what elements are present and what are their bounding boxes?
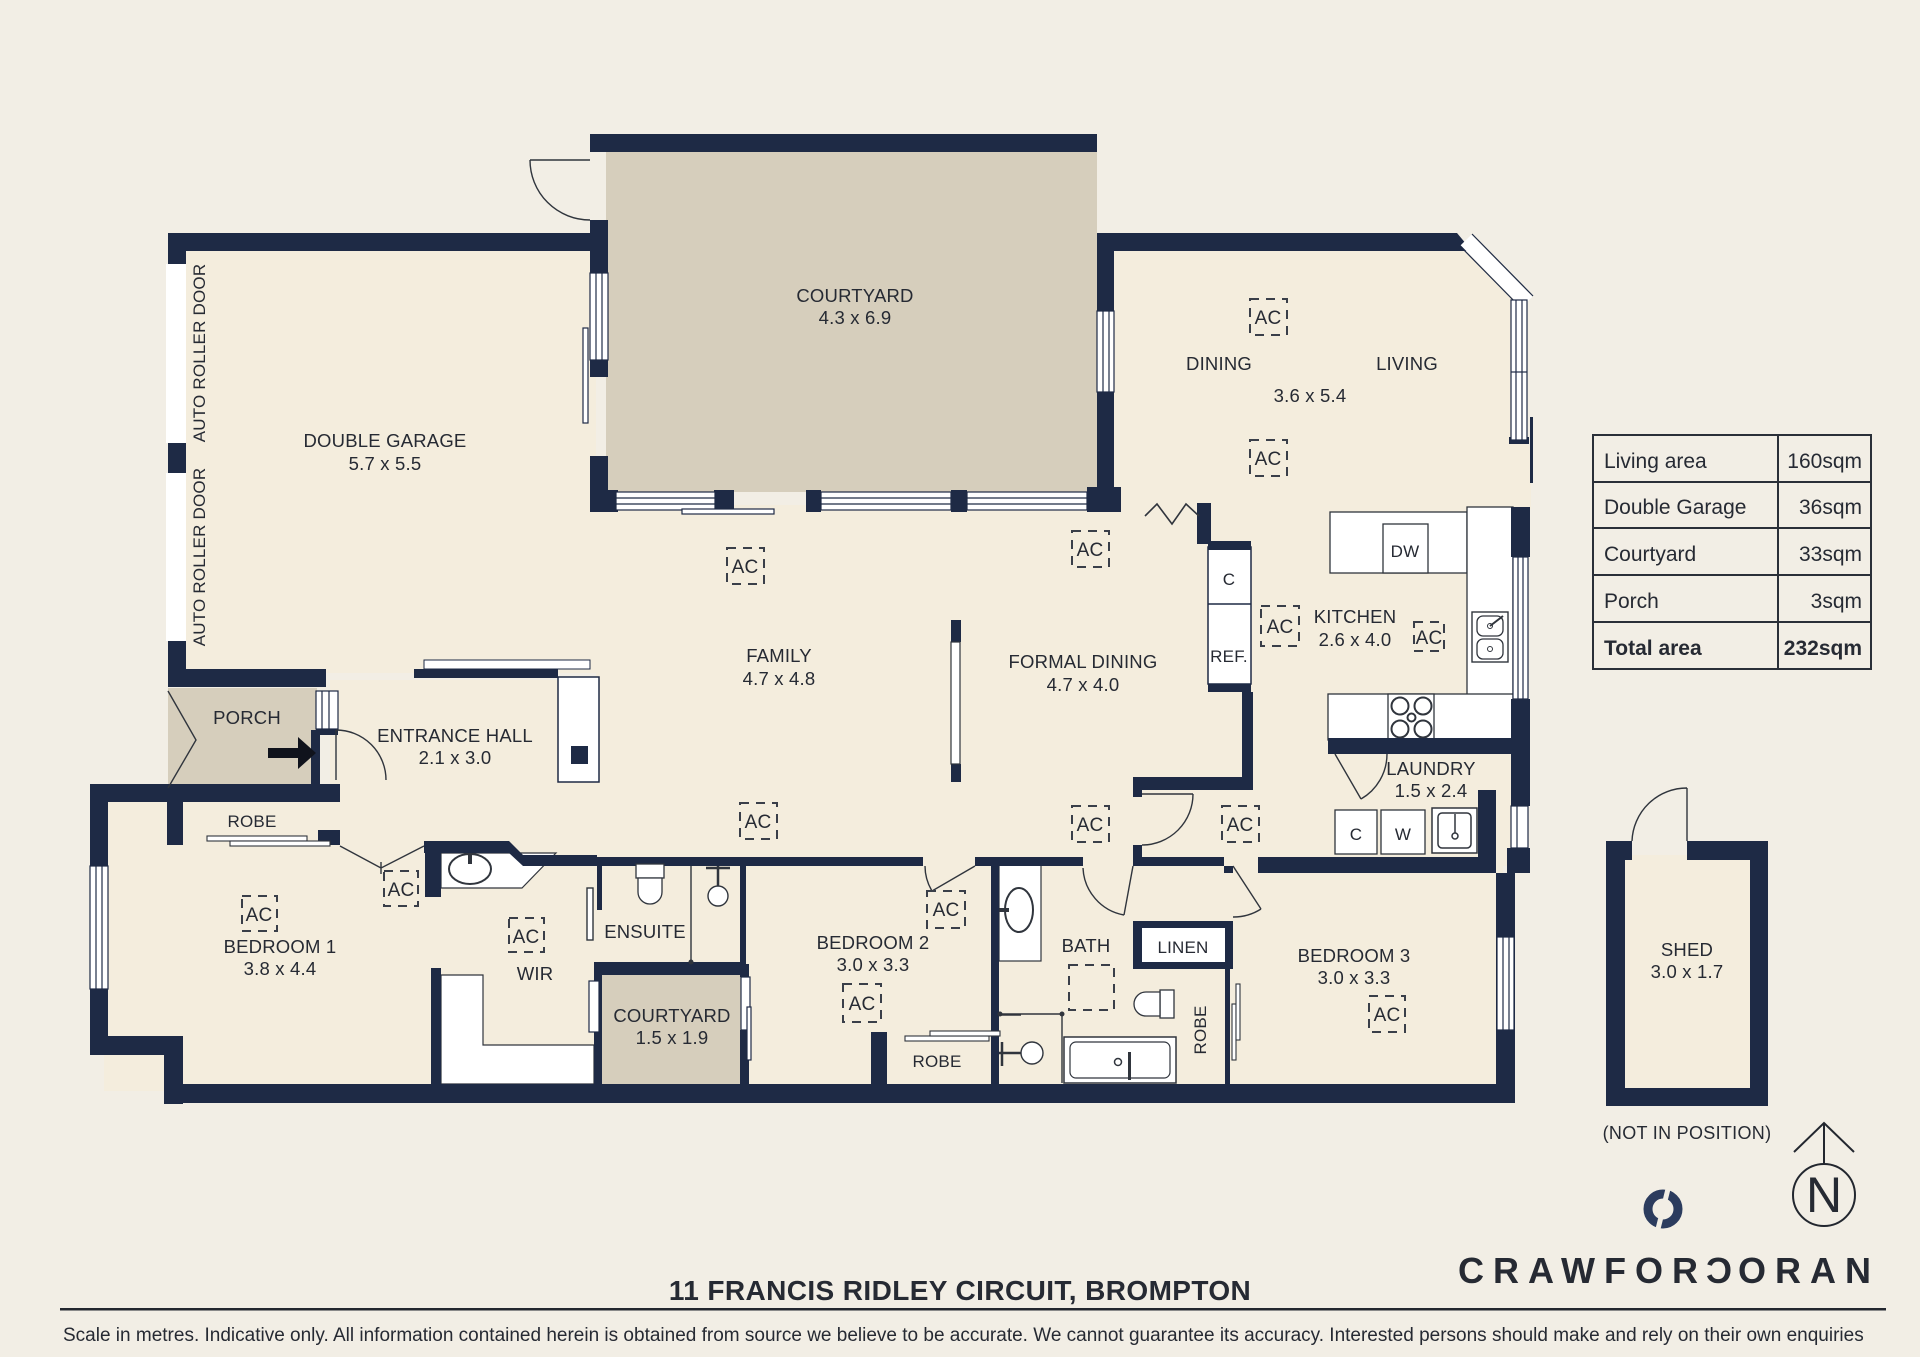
svg-text:BEDROOM 3: BEDROOM 3 (1298, 945, 1411, 966)
svg-text:2.6 x 4.0: 2.6 x 4.0 (1319, 629, 1392, 650)
svg-text:4.7 x 4.0: 4.7 x 4.0 (1047, 674, 1120, 695)
svg-text:ROBE: ROBE (1191, 1006, 1210, 1055)
svg-text:160sqm: 160sqm (1787, 450, 1862, 473)
svg-text:3.0 x 3.3: 3.0 x 3.3 (1318, 967, 1391, 988)
svg-text:REF.: REF. (1210, 647, 1248, 666)
svg-text:ROBE: ROBE (228, 812, 277, 831)
svg-text:BEDROOM 2: BEDROOM 2 (817, 932, 930, 953)
svg-text:AC: AC (513, 927, 540, 948)
svg-text:1.5 x 2.4: 1.5 x 2.4 (1395, 780, 1468, 801)
svg-text:11 FRANCIS RIDLEY CIRCUIT, BRO: 11 FRANCIS RIDLEY CIRCUIT, BROMPTON (669, 1275, 1251, 1306)
svg-text:(NOT IN POSITION): (NOT IN POSITION) (1603, 1123, 1772, 1143)
svg-text:Double Garage: Double Garage (1604, 496, 1746, 519)
svg-text:FORMAL DINING: FORMAL DINING (1009, 651, 1158, 672)
svg-text:ENTRANCE HALL: ENTRANCE HALL (377, 725, 533, 746)
svg-text:AC: AC (246, 905, 273, 926)
svg-text:AC: AC (1077, 815, 1104, 836)
svg-text:ENSUITE: ENSUITE (604, 921, 686, 942)
svg-text:36sqm: 36sqm (1799, 496, 1862, 519)
svg-text:Living area: Living area (1604, 450, 1707, 473)
svg-text:AC: AC (933, 900, 960, 921)
svg-text:Total area: Total area (1604, 637, 1702, 660)
svg-text:BEDROOM 1: BEDROOM 1 (224, 936, 337, 957)
svg-text:AC: AC (388, 880, 415, 901)
svg-text:N: N (1806, 1167, 1842, 1223)
svg-text:Scale in metres. Indicative on: Scale in metres. Indicative only. All in… (63, 1325, 1864, 1346)
svg-text:DOUBLE GARAGE: DOUBLE GARAGE (304, 430, 467, 451)
svg-text:AC: AC (1077, 540, 1104, 561)
svg-text:4.7 x 4.8: 4.7 x 4.8 (743, 668, 816, 689)
svg-text:AC: AC (1267, 617, 1294, 638)
svg-text:3sqm: 3sqm (1811, 590, 1862, 613)
svg-text:4.3 x 6.9: 4.3 x 6.9 (819, 307, 892, 328)
svg-text:AC: AC (732, 557, 759, 578)
svg-text:AUTO ROLLER DOOR: AUTO ROLLER DOOR (190, 468, 209, 647)
svg-text:W: W (1395, 825, 1411, 844)
svg-text:COURTYARD: COURTYARD (613, 1005, 730, 1026)
svg-text:C: C (1350, 825, 1362, 844)
svg-text:3.6 x 5.4: 3.6 x 5.4 (1274, 385, 1347, 406)
svg-text:WIR: WIR (517, 963, 554, 984)
svg-text:232sqm: 232sqm (1784, 637, 1862, 660)
svg-text:DW: DW (1391, 542, 1420, 561)
svg-text:KITCHEN: KITCHEN (1314, 606, 1397, 627)
svg-text:AC: AC (1227, 815, 1254, 836)
svg-text:PORCH: PORCH (213, 707, 281, 728)
svg-text:5.7 x 5.5: 5.7 x 5.5 (349, 453, 422, 474)
svg-text:LIVING: LIVING (1376, 353, 1438, 374)
svg-text:C: C (1697, 1250, 1732, 1291)
svg-text:ROBE: ROBE (913, 1052, 962, 1071)
svg-text:AC: AC (1416, 628, 1443, 649)
svg-text:AC: AC (745, 812, 772, 833)
svg-text:AC: AC (1255, 449, 1282, 470)
svg-text:SHED: SHED (1661, 939, 1713, 960)
svg-text:Porch: Porch (1604, 590, 1659, 613)
svg-text:AC: AC (1374, 1005, 1401, 1026)
svg-text:C: C (1223, 570, 1235, 589)
svg-text:FAMILY: FAMILY (746, 645, 812, 666)
svg-text:COURTYARD: COURTYARD (796, 285, 913, 306)
svg-text:AC: AC (1255, 308, 1282, 329)
svg-text:ORAN: ORAN (1738, 1250, 1880, 1291)
svg-text:CRAWFOR: CRAWFOR (1458, 1250, 1707, 1291)
svg-text:AC: AC (849, 994, 876, 1015)
svg-text:LINEN: LINEN (1157, 938, 1208, 957)
svg-text:3.0 x 1.7: 3.0 x 1.7 (1651, 961, 1724, 982)
svg-text:BATH: BATH (1062, 935, 1111, 956)
svg-text:3.8 x 4.4: 3.8 x 4.4 (244, 958, 317, 979)
svg-text:DINING: DINING (1186, 353, 1252, 374)
svg-text:33sqm: 33sqm (1799, 543, 1862, 566)
svg-text:2.1 x 3.0: 2.1 x 3.0 (419, 747, 492, 768)
svg-text:AUTO ROLLER DOOR: AUTO ROLLER DOOR (190, 264, 209, 443)
svg-text:1.5 x 1.9: 1.5 x 1.9 (636, 1027, 709, 1048)
svg-text:Courtyard: Courtyard (1604, 543, 1696, 566)
svg-text:LAUNDRY: LAUNDRY (1386, 758, 1475, 779)
svg-text:3.0 x 3.3: 3.0 x 3.3 (837, 954, 910, 975)
